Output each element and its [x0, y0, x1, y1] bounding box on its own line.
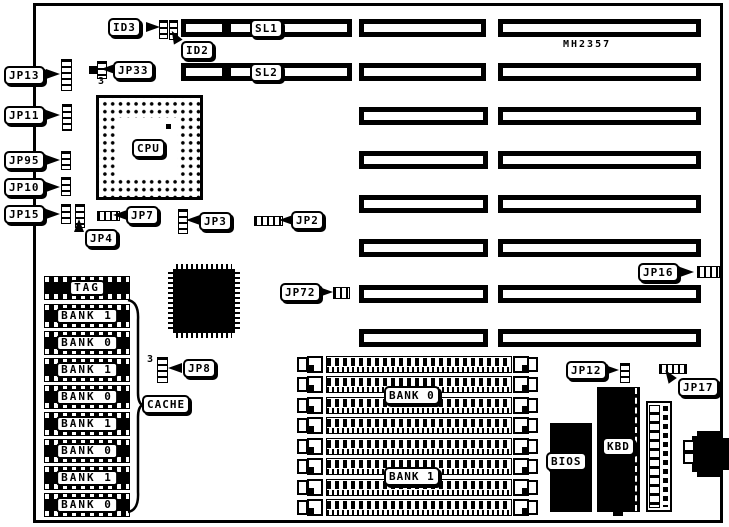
pointer-arrow [46, 209, 60, 219]
cache-chip: BANK 1 [44, 466, 130, 490]
jumper-label-id2: ID2 [181, 41, 214, 60]
simm-endcap [527, 500, 538, 515]
cache-label: CACHE [142, 395, 190, 414]
simm-socket-row [297, 438, 538, 455]
simm-clip [307, 417, 323, 434]
simm-clip [307, 479, 323, 496]
simm-contacts [326, 356, 512, 373]
chipset-pins-bottom [176, 333, 232, 338]
slot-row5-right [498, 195, 701, 213]
jumper-label-jp17: JP17 [678, 378, 719, 397]
simm-clip [307, 397, 323, 414]
pointer-arrow [46, 110, 60, 120]
cache-chip: BANK 1 [44, 304, 130, 328]
jumper-label-jp2: JP2 [291, 211, 324, 230]
slot-label-sl1: SL1 [250, 19, 283, 38]
cache-chip-label: BANK 0 [56, 443, 118, 459]
simm-contacts [326, 499, 512, 516]
jumper-header-jp13 [61, 59, 72, 91]
slot-row6-left [359, 239, 488, 257]
pointer-arrow [146, 22, 160, 32]
jumper-label-jp3: JP3 [199, 212, 232, 231]
slot-divider [222, 19, 231, 37]
slot-row8-left [359, 329, 488, 347]
power-connector [646, 401, 672, 512]
pin1-marker-jp33: 3 [98, 76, 104, 87]
kbd-chip-tab [613, 512, 623, 516]
pointer-arrow [168, 363, 182, 373]
jumper-header-jp8 [157, 357, 168, 383]
pointer-arrow [46, 155, 60, 165]
jumper-header-jp10 [61, 177, 71, 196]
cache-chip-label: TAG [69, 280, 105, 296]
simm-clip [307, 458, 323, 475]
slot-row4-right [498, 151, 701, 169]
cache-chip: BANK 1 [44, 412, 130, 436]
simm-clip [307, 499, 323, 516]
simm-endcap [527, 357, 538, 372]
memory-bank0-label: BANK 0 [384, 386, 440, 405]
bios-label: BIOS [546, 452, 587, 471]
cache-chip-tag: TAG [44, 276, 130, 300]
slot-row8-right [498, 329, 701, 347]
pointer-arrow [46, 182, 60, 192]
pin1-marker-jp8: 3 [147, 354, 153, 365]
jumper-header-jp95 [61, 151, 71, 170]
simm-socket-row [297, 356, 538, 373]
simm-contacts [326, 417, 512, 434]
simm-clip [307, 356, 323, 373]
cache-chip-label: BANK 1 [56, 308, 118, 324]
pointer-arrow [46, 69, 60, 79]
slot-row7-right [498, 285, 701, 303]
jumper-header-id3 [159, 20, 168, 39]
slot-row7-left [359, 285, 488, 303]
cpu-pin1-dot [166, 124, 171, 129]
jumper-label-jp95: JP95 [4, 151, 45, 170]
keyboard-din-connector-plug [717, 438, 729, 470]
kbd-label: KBD [602, 437, 635, 456]
cache-chip: BANK 0 [44, 439, 130, 463]
cache-chip: BANK 0 [44, 385, 130, 409]
chipset-pins-left [168, 272, 173, 330]
jumper-label-jp4: JP4 [85, 229, 118, 248]
motherboard-diagram: MH2357 SL1 SL2 ID3 ID2 3 JP33 JP13 JP11 … [0, 0, 729, 527]
simm-endcap [527, 480, 538, 495]
jumper-header-jp16 [697, 266, 720, 278]
slot-row2-seg-b [359, 63, 486, 81]
cache-chip: BANK 0 [44, 331, 130, 355]
jumper-label-jp15: JP15 [4, 205, 45, 224]
jumper-label-jp11: JP11 [4, 106, 45, 125]
simm-clip [307, 438, 323, 455]
jumper-label-jp33: JP33 [113, 61, 154, 80]
din-connector-pin [683, 452, 695, 464]
jumper-label-jp16: JP16 [638, 263, 679, 282]
simm-endcap [527, 377, 538, 392]
simm-socket-row [297, 499, 538, 516]
cpu-label: CPU [132, 139, 165, 158]
cache-chip-label: BANK 1 [56, 362, 118, 378]
pointer-arrow [319, 287, 333, 297]
cache-chip-label: BANK 0 [56, 497, 118, 513]
pointer-arrow [113, 210, 127, 220]
jumper-header-jp12 [620, 363, 630, 383]
slot-row6-right [498, 239, 701, 257]
chipset-pins-right [235, 272, 240, 330]
din-connector-pin [683, 440, 695, 452]
cache-brace [126, 298, 143, 514]
slot-divider [222, 63, 231, 81]
jumper-label-id3: ID3 [108, 18, 141, 37]
simm-endcap [527, 459, 538, 474]
simm-endcap [527, 398, 538, 413]
cache-chip-label: BANK 0 [56, 389, 118, 405]
slot-row1-seg-b [359, 19, 486, 37]
slot-row3-left [359, 107, 488, 125]
cache-chip-label: BANK 0 [56, 335, 118, 351]
jumper-header-jp72 [333, 287, 350, 299]
simm-contacts [326, 438, 512, 455]
jumper-label-jp13: JP13 [4, 66, 45, 85]
memory-bank1-label: BANK 1 [384, 467, 440, 486]
simm-clip [307, 376, 323, 393]
cache-chip: BANK 1 [44, 358, 130, 382]
jumper-label-jp72: JP72 [280, 283, 321, 302]
pointer-arrow [74, 219, 84, 232]
chipset-pins-top [176, 264, 232, 269]
cache-chip-label: BANK 1 [56, 416, 118, 432]
jumper-label-jp7: JP7 [126, 206, 159, 225]
cache-chip: BANK 0 [44, 493, 130, 517]
board-model-number: MH2357 [563, 39, 611, 50]
jumper-header-jp11 [62, 104, 72, 131]
chipset-chip [173, 269, 235, 333]
slot-row4-left [359, 151, 488, 169]
pointer-arrow [186, 215, 200, 225]
slot-row1-seg-c [498, 19, 701, 37]
jumper-label-jp10: JP10 [4, 178, 45, 197]
jumper-cap-jp33 [89, 66, 97, 74]
simm-endcap [527, 439, 538, 454]
jumper-label-jp8: JP8 [183, 359, 216, 378]
slot-row2-seg-c [498, 63, 701, 81]
slot-row5-left [359, 195, 488, 213]
jumper-header-jp15 [61, 204, 71, 224]
simm-socket-row [297, 417, 538, 434]
slot-row3-right [498, 107, 701, 125]
pointer-arrow [605, 365, 619, 375]
cache-chip-label: BANK 1 [56, 470, 118, 486]
pointer-arrow [680, 267, 694, 277]
jumper-label-jp12: JP12 [566, 361, 607, 380]
simm-endcap [527, 418, 538, 433]
slot-label-sl2: SL2 [250, 63, 283, 82]
